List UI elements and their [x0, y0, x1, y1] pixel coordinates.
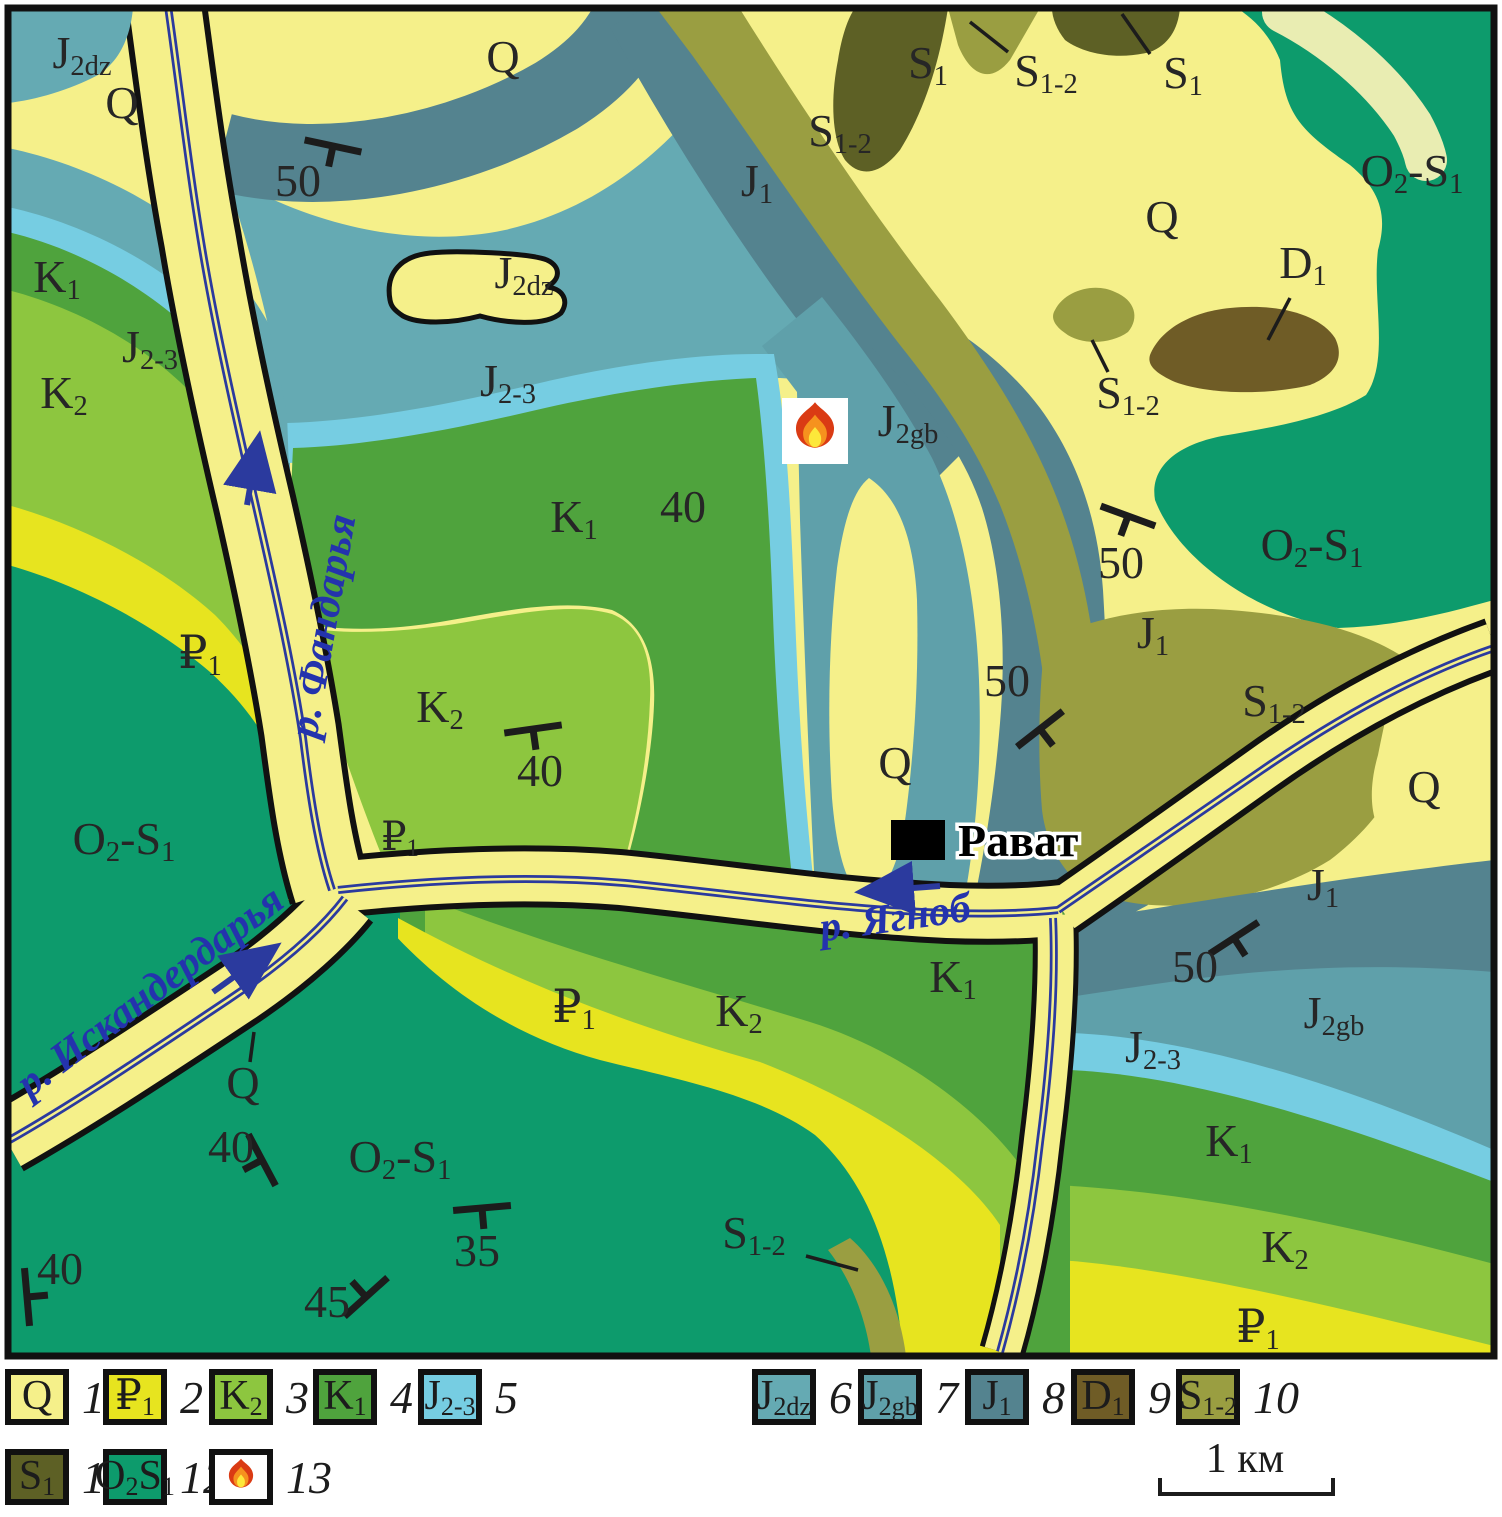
unit-label: O2-S1: [1361, 145, 1464, 200]
legend-number: 10: [1253, 1372, 1299, 1423]
legend-number: 2: [180, 1372, 203, 1423]
town-name: Рават: [958, 815, 1079, 866]
legend-number: 7: [935, 1372, 960, 1423]
dip-value: 50: [1172, 941, 1218, 992]
unit-label: O2-S1: [1261, 519, 1364, 574]
legend-item-10: S1-210: [1179, 1372, 1299, 1423]
town-marker: [891, 820, 945, 860]
legend-item-8: J18: [968, 1372, 1065, 1423]
legend-item-2: ₽12: [106, 1372, 203, 1423]
fire-icon: [782, 398, 848, 464]
unit-label: Q: [1145, 191, 1178, 242]
unit-label: 40: [660, 481, 706, 532]
unit-label: O2-S1: [73, 813, 176, 868]
dip-value: 40: [37, 1243, 83, 1294]
geological-map-page: 504050505040354540 J2dzQQS1S1-2S1S1-2J1O…: [0, 0, 1502, 1517]
dip-value: 50: [1098, 537, 1144, 588]
unit-label: Q: [486, 31, 519, 82]
legend-item-3: K23: [212, 1372, 309, 1423]
legend-item-6: J2dz6: [755, 1372, 852, 1423]
dip-value: 50: [984, 655, 1030, 706]
dip-value: 40: [208, 1121, 254, 1172]
legend-item-7: J2gb7: [861, 1372, 960, 1423]
legend-number: 4: [390, 1372, 413, 1423]
dip-value: 40: [517, 745, 563, 796]
dip-value: 35: [454, 1225, 500, 1276]
unit-label: Q: [878, 737, 911, 788]
legend-item-5: J2-35: [421, 1372, 518, 1423]
legend-number: 8: [1042, 1372, 1065, 1423]
unit-label: Q: [226, 1057, 259, 1108]
legend-item-13: 13: [212, 1452, 332, 1503]
legend-number: 5: [495, 1372, 518, 1423]
legend-number: 6: [829, 1372, 852, 1423]
scale-label: 1 км: [1206, 1436, 1284, 1482]
legend-item-12: O2S112: [95, 1452, 226, 1503]
town-ravat: Рават: [891, 815, 1079, 866]
legend-number: 1: [82, 1372, 105, 1423]
legend-number: 13: [286, 1452, 332, 1503]
legend-number: 9: [1148, 1372, 1171, 1423]
legend: Q1₽12K23K14J2-35J2dz6J2gb7J18D19S1-210S1…: [8, 1372, 1299, 1503]
dip-value: 50: [275, 155, 321, 206]
legend-symbol: Q: [22, 1373, 52, 1419]
legend-item-4: K14: [316, 1372, 413, 1423]
dip-value: 45: [304, 1276, 350, 1327]
geological-map: 504050505040354540 J2dzQQS1S1-2S1S1-2J1O…: [0, 0, 1502, 1517]
legend-number: 3: [285, 1372, 309, 1423]
coal-fire-icon: [782, 398, 848, 464]
unit-label: Q: [105, 77, 138, 128]
unit-label: Q: [1407, 761, 1440, 812]
legend-item-9: D19: [1074, 1372, 1171, 1423]
legend-item-1: Q1: [8, 1372, 105, 1423]
unit-label: O2-S1: [349, 1131, 452, 1186]
scale-bar: 1 км: [1160, 1436, 1333, 1494]
